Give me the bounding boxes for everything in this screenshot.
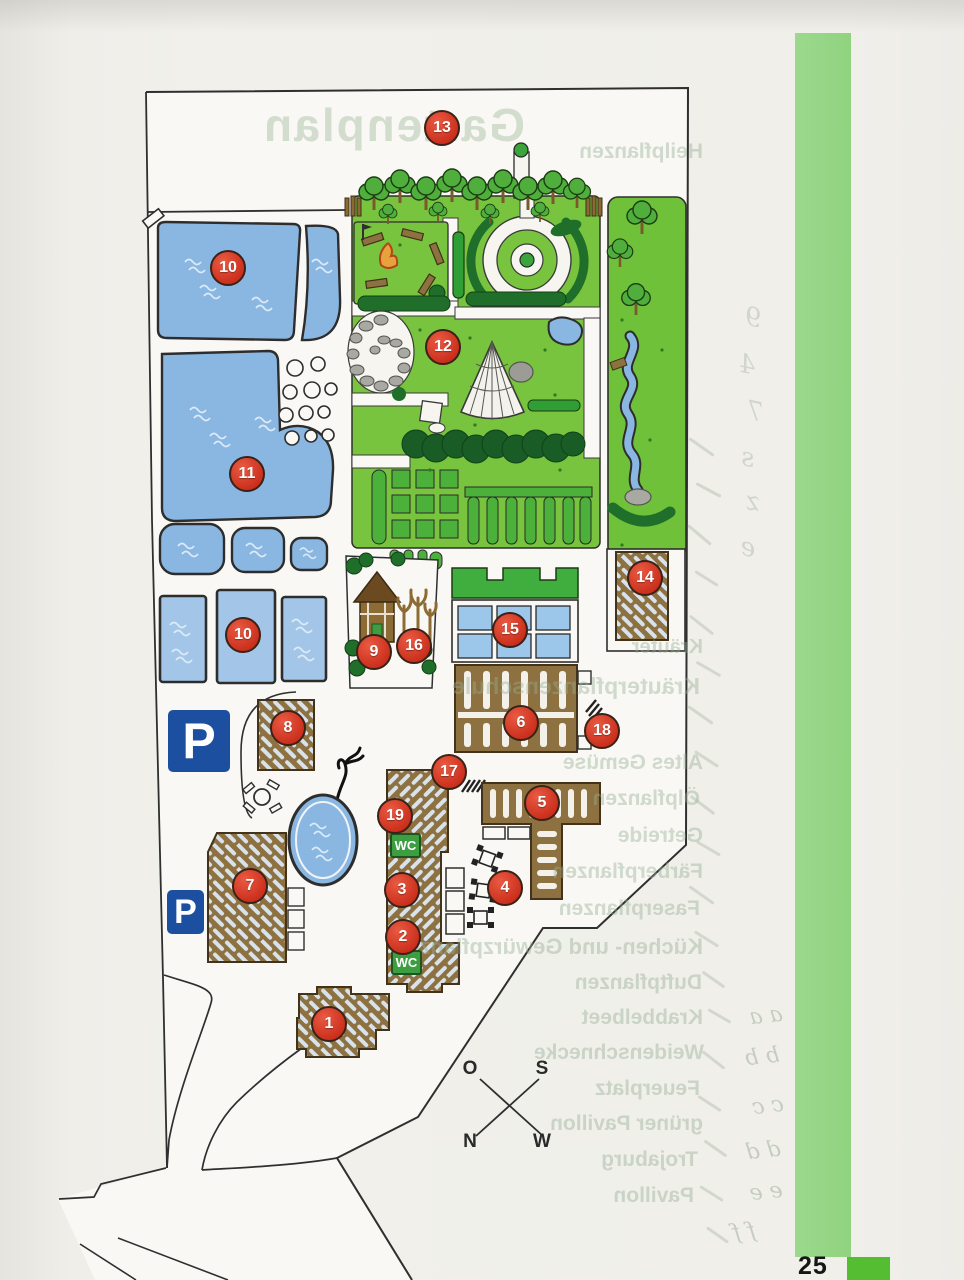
map-marker-6: 6 bbox=[503, 705, 539, 741]
map-marker-7: 7 bbox=[232, 868, 268, 904]
map-marker-15: 15 bbox=[492, 612, 528, 648]
map-marker-2: 2 bbox=[385, 919, 421, 955]
map-marker-10: 10 bbox=[210, 250, 246, 286]
map-marker-12: 12 bbox=[425, 329, 461, 365]
map-marker-11: 11 bbox=[229, 456, 265, 492]
map-marker-17: 17 bbox=[431, 754, 467, 790]
map-markers: 1310121110141591661881751934271 bbox=[0, 0, 964, 1280]
map-marker-4: 4 bbox=[487, 870, 523, 906]
map-marker-10: 10 bbox=[225, 617, 261, 653]
map-marker-13: 13 bbox=[424, 110, 460, 146]
map-marker-18: 18 bbox=[584, 713, 620, 749]
map-marker-14: 14 bbox=[627, 560, 663, 596]
map-marker-16: 16 bbox=[396, 628, 432, 664]
map-marker-9: 9 bbox=[356, 634, 392, 670]
scanned-page: 25 Gartenplan O S N W HeilpflanzenKräute… bbox=[0, 0, 964, 1280]
map-marker-19: 19 bbox=[377, 798, 413, 834]
map-marker-5: 5 bbox=[524, 785, 560, 821]
map-marker-3: 3 bbox=[384, 872, 420, 908]
map-marker-1: 1 bbox=[311, 1006, 347, 1042]
map-marker-8: 8 bbox=[270, 710, 306, 746]
